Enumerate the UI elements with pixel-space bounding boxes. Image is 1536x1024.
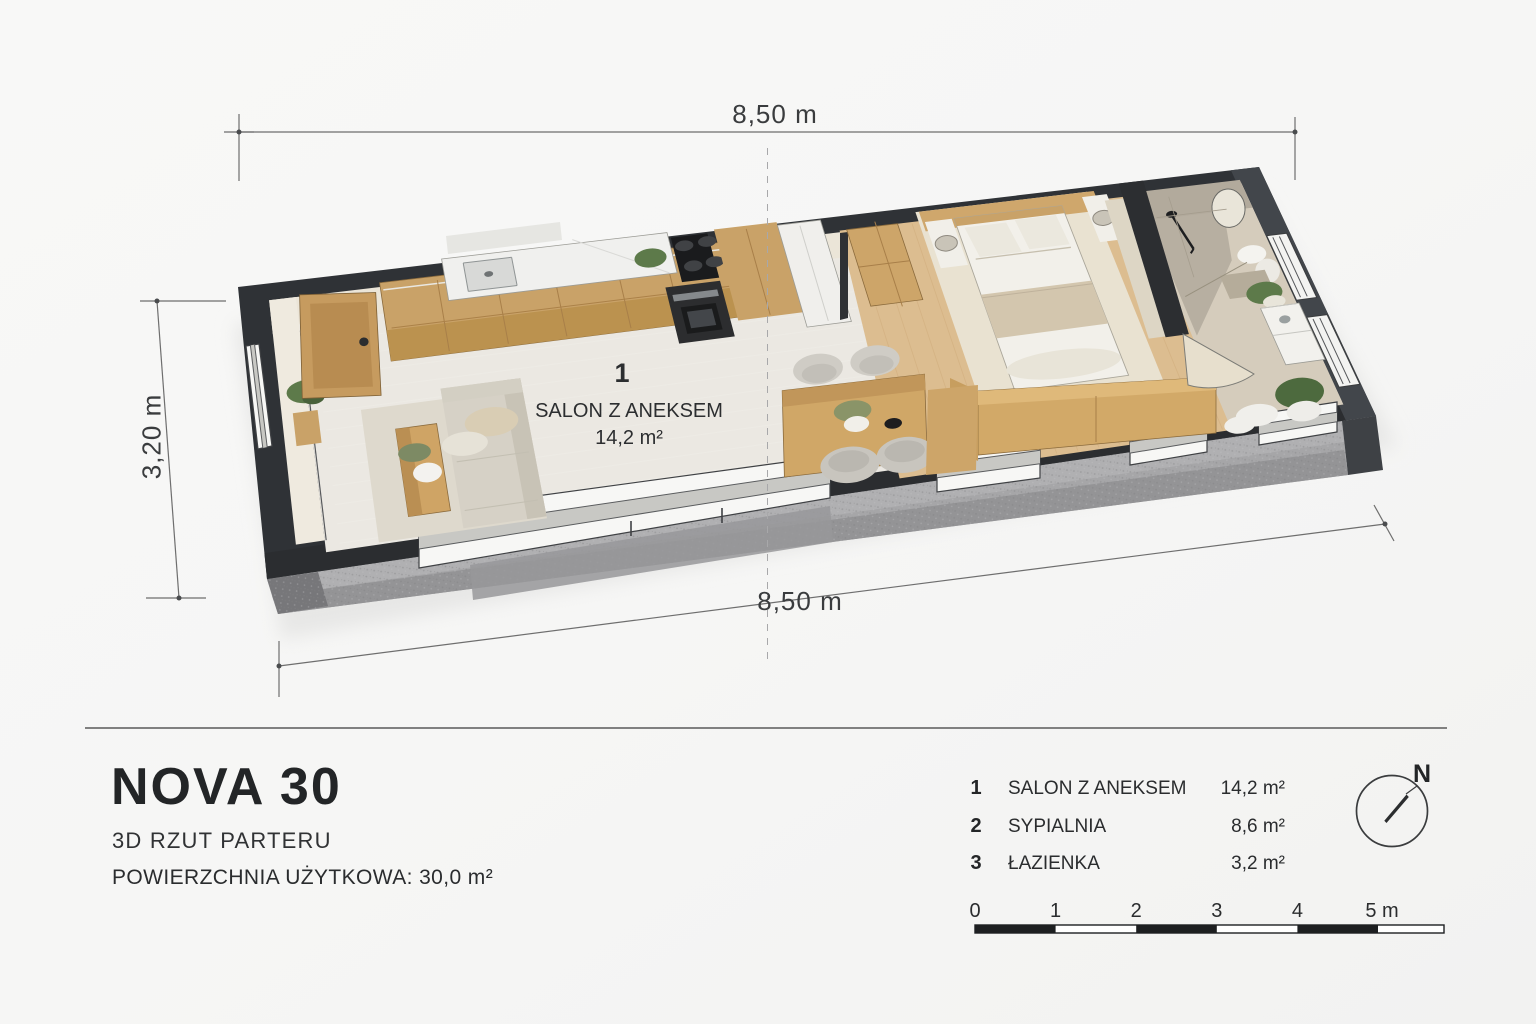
svg-text:3: 3 [1211,900,1222,922]
svg-text:2: 2 [1131,900,1142,922]
svg-text:1: 1 [1050,900,1061,922]
svg-text:5 m: 5 m [1365,900,1398,922]
svg-text:4: 4 [1292,900,1303,922]
svg-text:0: 0 [970,900,981,922]
svg-text:N: N [1413,760,1431,788]
